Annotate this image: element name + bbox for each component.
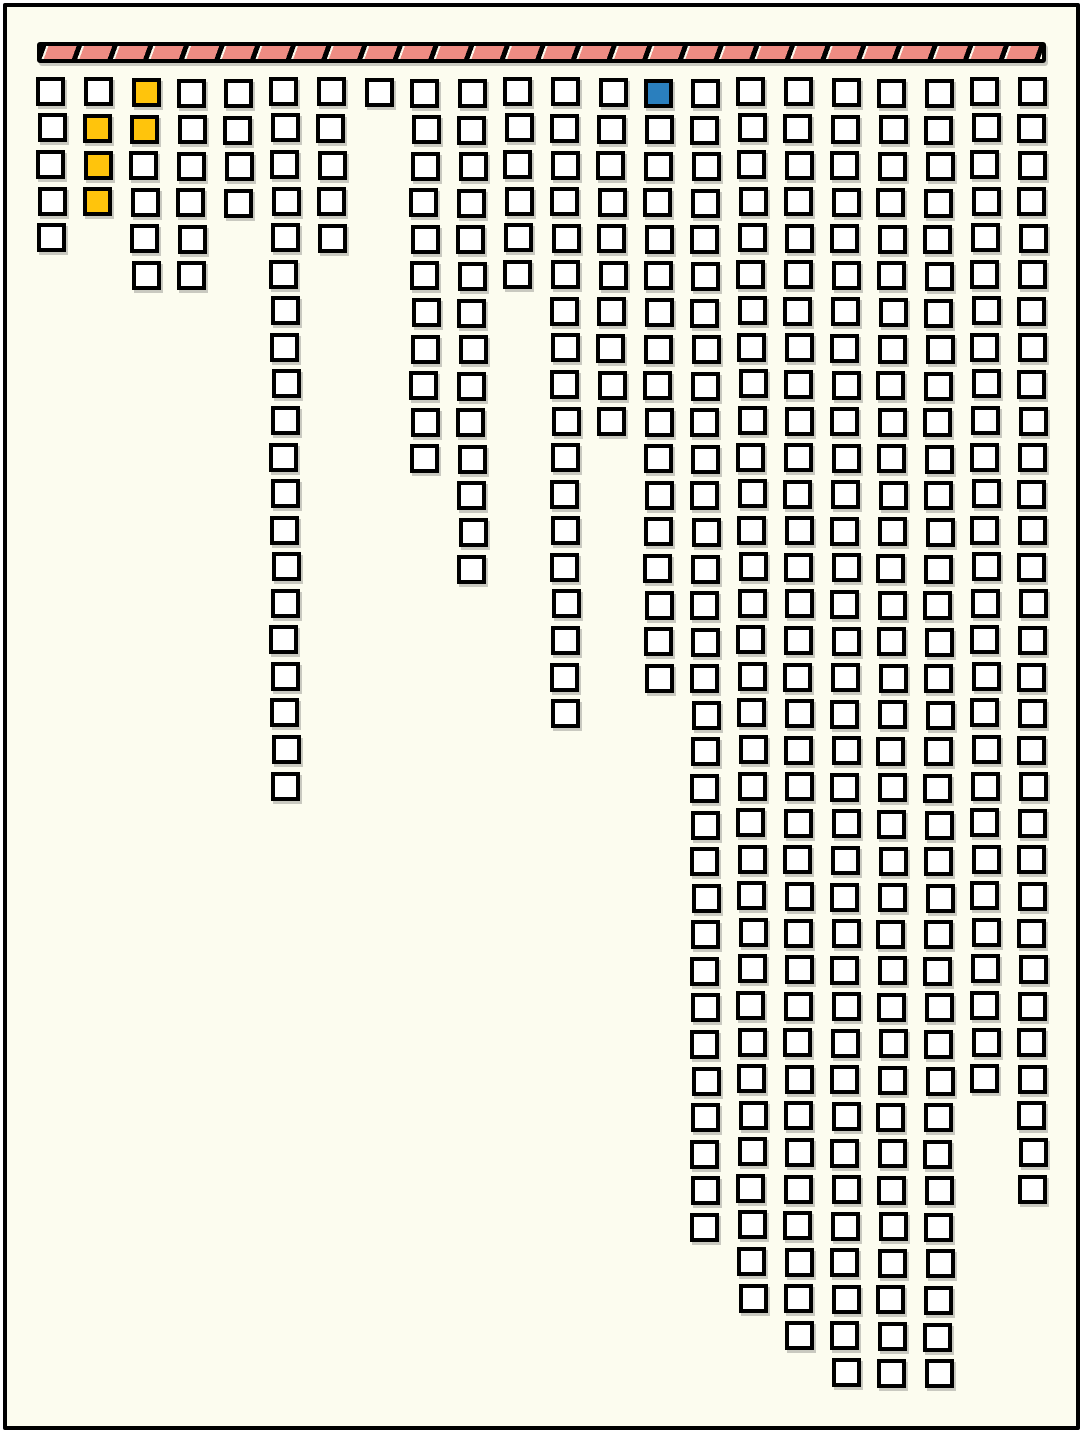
cell-c19-r6 — [877, 261, 906, 290]
cell-c4-r1 — [177, 79, 206, 108]
cell-c19-r22 — [879, 847, 908, 876]
cell-c17-r33 — [785, 1248, 814, 1277]
cell-c18-r13 — [830, 517, 859, 546]
cell-c18-r18 — [830, 700, 859, 729]
cell-c10-r4 — [457, 189, 486, 218]
cell-c12-r3 — [551, 151, 580, 180]
cell-c10-r6 — [458, 262, 487, 291]
cell-c18-r16 — [832, 627, 861, 656]
cell-c21-r11 — [970, 443, 999, 472]
cell-c20-r32 — [924, 1213, 953, 1242]
cell-c22-r14 — [1017, 553, 1046, 582]
cell-c11-r1 — [503, 77, 532, 106]
cell-c20-r34 — [924, 1286, 953, 1315]
cell-c15-r14 — [691, 555, 720, 584]
cell-c19-r4 — [876, 188, 905, 217]
cell-c16-r32 — [738, 1210, 767, 1239]
cell-c10-r13 — [459, 518, 488, 547]
cell-c14-r8 — [644, 335, 673, 364]
cell-c15-r26 — [691, 993, 720, 1022]
cell-c11-r6 — [503, 260, 532, 289]
cell-c11-r3 — [503, 150, 532, 179]
cell-c3-r6 — [132, 261, 161, 290]
cell-c22-r12 — [1017, 480, 1046, 509]
cell-c5-r3 — [225, 152, 254, 181]
cell-c17-r2 — [783, 114, 812, 143]
cell-c10-r12 — [457, 481, 486, 510]
cell-c7-r3 — [318, 151, 347, 180]
cell-c21-r12 — [972, 479, 1001, 508]
cell-c17-r22 — [783, 845, 812, 874]
cell-c10-r11 — [458, 445, 487, 474]
cell-c21-r17 — [972, 662, 1001, 691]
cell-c19-r10 — [878, 408, 907, 437]
cell-c15-r18 — [692, 701, 721, 730]
cell-c19-r7 — [879, 298, 908, 327]
cell-c21-r28 — [970, 1064, 999, 1093]
cell-c14-r6 — [644, 261, 673, 290]
cell-c9-r10 — [411, 408, 440, 437]
cell-c21-r24 — [972, 918, 1001, 947]
cell-c2-r1 — [84, 77, 113, 106]
cell-c4-r5 — [178, 225, 207, 254]
cell-c18-r25 — [830, 956, 859, 985]
cell-c15-r31 — [691, 1176, 720, 1205]
cell-c17-r27 — [783, 1028, 812, 1057]
cell-c17-r8 — [785, 333, 814, 362]
cell-c21-r10 — [971, 406, 1000, 435]
cell-c17-r4 — [784, 187, 813, 216]
cell-c21-r7 — [972, 296, 1001, 325]
cell-c19-r21 — [877, 810, 906, 839]
cell-c20-r15 — [923, 591, 952, 620]
cell-c20-r27 — [924, 1030, 953, 1059]
cell-c16-r19 — [739, 735, 768, 764]
cell-c16-r10 — [738, 406, 767, 435]
cell-c20-r25 — [923, 957, 952, 986]
cell-c18-r31 — [832, 1175, 861, 1204]
cell-c13-r6 — [599, 261, 628, 290]
cell-c15-r3 — [692, 152, 721, 181]
cell-c14-r2 — [645, 115, 674, 144]
cell-c14-r17 — [645, 664, 674, 693]
cell-c22-r8 — [1018, 333, 1047, 362]
cell-c12-r5 — [552, 224, 581, 253]
cell-c18-r32 — [831, 1212, 860, 1241]
cell-c6-r12 — [271, 479, 300, 508]
cell-c19-r27 — [879, 1029, 908, 1058]
cell-c18-r33 — [830, 1248, 859, 1277]
cell-c12-r13 — [551, 516, 580, 545]
cell-c4-r3 — [177, 152, 206, 181]
cell-c17-r16 — [784, 626, 813, 655]
cell-c22-r18 — [1018, 699, 1047, 728]
cell-c20-r26 — [925, 993, 954, 1022]
cell-c16-r18 — [737, 698, 766, 727]
cell-c17-r11 — [784, 443, 813, 472]
cell-c22-r26 — [1018, 992, 1047, 1021]
cell-c20-r6 — [925, 262, 954, 291]
cell-c19-r26 — [877, 993, 906, 1022]
cell-c9-r7 — [412, 298, 441, 327]
cell-c21-r8 — [970, 333, 999, 362]
cell-c22-r5 — [1019, 224, 1048, 253]
cell-c7-r1 — [317, 77, 346, 106]
cell-c15-r19 — [691, 737, 720, 766]
cell-c18-r22 — [831, 846, 860, 875]
cell-c16-r22 — [738, 845, 767, 874]
cell-c22-r2 — [1017, 114, 1046, 143]
cell-c12-r7 — [550, 297, 579, 326]
cell-c1-r5 — [37, 223, 66, 252]
cell-c6-r8 — [270, 333, 299, 362]
cell-c19-r1 — [877, 79, 906, 108]
cell-c13-r10 — [597, 407, 626, 436]
cell-c19-r9 — [876, 371, 905, 400]
highlighted-cell-blue-c14-r1 — [644, 79, 673, 108]
cell-c22-r13 — [1018, 516, 1047, 545]
cell-c20-r9 — [924, 372, 953, 401]
cell-c20-r22 — [924, 847, 953, 876]
cell-c9-r2 — [412, 115, 441, 144]
cell-c12-r15 — [552, 589, 581, 618]
cell-c17-r34 — [784, 1284, 813, 1313]
cell-c22-r10 — [1019, 407, 1048, 436]
cell-c15-r17 — [690, 664, 719, 693]
cell-c18-r26 — [832, 992, 861, 1021]
cell-c10-r3 — [459, 152, 488, 181]
cell-c15-r25 — [690, 957, 719, 986]
cell-c18-r1 — [832, 78, 861, 107]
cell-c17-r13 — [785, 516, 814, 545]
cell-c21-r20 — [971, 772, 1000, 801]
cell-c1-r3 — [36, 150, 65, 179]
cell-c6-r14 — [272, 552, 301, 581]
cell-c15-r13 — [692, 518, 721, 547]
cell-c19-r23 — [878, 883, 907, 912]
cell-c12-r1 — [551, 77, 580, 106]
cell-c14-r5 — [645, 225, 674, 254]
cell-c18-r14 — [832, 553, 861, 582]
cell-c16-r5 — [738, 223, 767, 252]
cell-c6-r4 — [272, 187, 301, 216]
cell-c17-r23 — [785, 882, 814, 911]
cell-c12-r14 — [550, 553, 579, 582]
cell-c17-r19 — [784, 736, 813, 765]
cell-c20-r28 — [926, 1067, 955, 1096]
cell-c22-r24 — [1017, 919, 1046, 948]
cell-c6-r5 — [271, 223, 300, 252]
cell-c19-r16 — [877, 627, 906, 656]
cell-c22-r19 — [1017, 736, 1046, 765]
cell-c18-r11 — [832, 444, 861, 473]
cell-c22-r15 — [1019, 589, 1048, 618]
cell-c9-r8 — [411, 335, 440, 364]
cell-c17-r14 — [784, 553, 813, 582]
cell-c14-r11 — [644, 444, 673, 473]
cell-c16-r8 — [737, 333, 766, 362]
cell-c15-r5 — [690, 225, 719, 254]
cell-c22-r3 — [1018, 151, 1047, 180]
cell-c13-r3 — [596, 151, 625, 180]
cell-c21-r1 — [970, 77, 999, 106]
cell-c17-r12 — [783, 480, 812, 509]
cell-c20-r14 — [924, 555, 953, 584]
cell-c16-r24 — [739, 918, 768, 947]
cell-c17-r5 — [785, 224, 814, 253]
cell-c19-r35 — [878, 1322, 907, 1351]
cell-c16-r11 — [736, 443, 765, 472]
cell-c10-r14 — [457, 555, 486, 584]
cell-c22-r17 — [1017, 663, 1046, 692]
cell-c20-r11 — [925, 445, 954, 474]
cell-c17-r3 — [785, 151, 814, 180]
cell-c21-r15 — [971, 589, 1000, 618]
cell-c17-r6 — [784, 260, 813, 289]
cell-c22-r4 — [1017, 187, 1046, 216]
cell-c6-r15 — [271, 589, 300, 618]
cell-c20-r35 — [923, 1323, 952, 1352]
cell-c20-r21 — [925, 811, 954, 840]
cell-c22-r22 — [1017, 845, 1046, 874]
cell-c6-r17 — [271, 662, 300, 691]
cell-c15-r23 — [692, 884, 721, 913]
cell-c7-r5 — [318, 224, 347, 253]
cell-c18-r30 — [830, 1139, 859, 1168]
cell-c9-r4 — [409, 188, 438, 217]
cell-c18-r8 — [830, 334, 859, 363]
cell-c18-r27 — [831, 1029, 860, 1058]
cell-c20-r24 — [924, 920, 953, 949]
cell-c21-r6 — [970, 260, 999, 289]
cell-c22-r16 — [1018, 626, 1047, 655]
cell-c17-r28 — [785, 1065, 814, 1094]
cell-c21-r22 — [972, 845, 1001, 874]
cell-c19-r19 — [876, 737, 905, 766]
cell-c6-r6 — [269, 260, 298, 289]
cell-c13-r5 — [597, 224, 626, 253]
cell-c6-r11 — [269, 443, 298, 472]
cell-c15-r16 — [691, 628, 720, 657]
cell-c13-r8 — [596, 334, 625, 363]
cell-c19-r12 — [879, 481, 908, 510]
cell-c18-r35 — [830, 1321, 859, 1350]
cell-c22-r29 — [1017, 1101, 1046, 1130]
cell-c12-r12 — [550, 480, 579, 509]
cell-c4-r6 — [177, 261, 206, 290]
cell-c6-r18 — [270, 698, 299, 727]
cell-c16-r26 — [736, 991, 765, 1020]
cell-c18-r17 — [831, 663, 860, 692]
cell-c17-r7 — [783, 297, 812, 326]
cell-c15-r15 — [690, 591, 719, 620]
cell-c17-r24 — [784, 919, 813, 948]
cell-c17-r18 — [785, 699, 814, 728]
cell-c15-r32 — [690, 1213, 719, 1242]
cell-c16-r31 — [736, 1174, 765, 1203]
cell-c22-r27 — [1017, 1028, 1046, 1057]
cell-c17-r25 — [785, 955, 814, 984]
cell-c18-r36 — [832, 1358, 861, 1387]
cell-c19-r29 — [876, 1103, 905, 1132]
cell-c22-r6 — [1018, 260, 1047, 289]
cell-c3-r5 — [130, 224, 159, 253]
cell-c18-r20 — [830, 773, 859, 802]
cell-c6-r1 — [269, 77, 298, 106]
cell-c18-r2 — [831, 115, 860, 144]
cell-c9-r11 — [410, 444, 439, 473]
cell-c19-r13 — [878, 517, 907, 546]
cell-c5-r4 — [224, 189, 253, 218]
cell-c13-r1 — [599, 78, 628, 107]
cell-c12-r9 — [550, 370, 579, 399]
cell-c17-r15 — [785, 589, 814, 618]
cell-c16-r16 — [736, 625, 765, 654]
cell-c19-r3 — [878, 152, 907, 181]
cell-c7-r4 — [317, 187, 346, 216]
cell-c6-r13 — [270, 516, 299, 545]
cell-c10-r7 — [457, 299, 486, 328]
cell-c14-r7 — [645, 298, 674, 327]
cell-c15-r21 — [691, 811, 720, 840]
cell-c17-r35 — [785, 1321, 814, 1350]
cell-c21-r14 — [972, 552, 1001, 581]
cell-c16-r33 — [737, 1247, 766, 1276]
cell-c16-r2 — [738, 113, 767, 142]
cell-c11-r4 — [505, 187, 534, 216]
cell-c21-r21 — [970, 808, 999, 837]
cell-c21-r23 — [970, 881, 999, 910]
cell-c12-r16 — [551, 626, 580, 655]
cell-c22-r20 — [1019, 772, 1048, 801]
cell-c16-r29 — [739, 1101, 768, 1130]
cell-c20-r8 — [926, 335, 955, 364]
cell-c21-r13 — [970, 516, 999, 545]
cell-c15-r2 — [690, 116, 719, 145]
cell-c17-r1 — [784, 77, 813, 106]
cell-c18-r3 — [830, 151, 859, 180]
cell-c13-r7 — [597, 297, 626, 326]
cell-c16-r4 — [739, 187, 768, 216]
cell-c18-r4 — [832, 188, 861, 217]
cell-c16-r12 — [738, 479, 767, 508]
cell-c1-r4 — [38, 187, 67, 216]
cell-c21-r18 — [970, 698, 999, 727]
cell-c9-r5 — [411, 225, 440, 254]
cell-c20-r30 — [923, 1140, 952, 1169]
cell-c6-r7 — [271, 296, 300, 325]
cell-c3-r3 — [129, 151, 158, 180]
highlighted-cell-yellow-c3-r1 — [132, 78, 161, 107]
cell-c10-r8 — [459, 335, 488, 364]
cell-c20-r2 — [924, 116, 953, 145]
cell-c20-r31 — [925, 1176, 954, 1205]
cell-c20-r1 — [925, 79, 954, 108]
cell-c18-r28 — [830, 1065, 859, 1094]
cell-c19-r11 — [877, 444, 906, 473]
cell-c19-r30 — [878, 1139, 907, 1168]
cell-c21-r4 — [972, 187, 1001, 216]
cell-c14-r15 — [645, 591, 674, 620]
cell-c6-r3 — [270, 150, 299, 179]
hanging-squares-board — [0, 0, 1083, 1433]
cell-c13-r9 — [598, 371, 627, 400]
cell-c14-r3 — [644, 152, 673, 181]
cell-c14-r9 — [643, 371, 672, 400]
highlighted-cell-yellow-c2-r4 — [83, 187, 112, 216]
cell-c15-r20 — [690, 774, 719, 803]
cell-c15-r30 — [690, 1140, 719, 1169]
cell-c21-r26 — [970, 991, 999, 1020]
cell-c20-r29 — [924, 1103, 953, 1132]
cell-c6-r9 — [272, 369, 301, 398]
cell-c20-r3 — [926, 152, 955, 181]
cell-c16-r9 — [739, 369, 768, 398]
cell-c12-r4 — [550, 187, 579, 216]
cell-c21-r2 — [972, 113, 1001, 142]
cell-c8-r1 — [365, 78, 394, 107]
cell-c12-r8 — [551, 333, 580, 362]
cell-c19-r17 — [879, 664, 908, 693]
cell-c20-r16 — [925, 628, 954, 657]
cell-c22-r7 — [1017, 297, 1046, 326]
cell-c6-r20 — [271, 772, 300, 801]
cell-c9-r3 — [411, 152, 440, 181]
cell-c4-r2 — [178, 115, 207, 144]
cell-c18-r10 — [830, 407, 859, 436]
cell-c20-r7 — [924, 299, 953, 328]
cell-c20-r4 — [924, 189, 953, 218]
cell-c22-r25 — [1019, 955, 1048, 984]
cell-c4-r4 — [176, 188, 205, 217]
cell-c21-r9 — [972, 369, 1001, 398]
cell-c6-r16 — [269, 625, 298, 654]
cell-c6-r10 — [271, 406, 300, 435]
cell-c9-r6 — [410, 261, 439, 290]
cell-c20-r20 — [923, 774, 952, 803]
cell-c1-r1 — [36, 77, 65, 106]
cell-c20-r33 — [926, 1249, 955, 1278]
cell-c21-r19 — [972, 735, 1001, 764]
cell-c22-r21 — [1018, 809, 1047, 838]
cell-c18-r6 — [832, 261, 861, 290]
cell-c15-r1 — [691, 79, 720, 108]
cell-c11-r2 — [505, 113, 534, 142]
cell-c14-r10 — [645, 408, 674, 437]
cell-c22-r31 — [1018, 1175, 1047, 1204]
cell-c15-r10 — [690, 408, 719, 437]
cell-c22-r23 — [1018, 882, 1047, 911]
cell-c17-r30 — [785, 1138, 814, 1167]
cell-c12-r2 — [550, 114, 579, 143]
cell-c19-r8 — [878, 335, 907, 364]
cell-c15-r22 — [690, 847, 719, 876]
cell-c15-r11 — [691, 445, 720, 474]
cell-c16-r1 — [736, 77, 765, 106]
cell-c15-r6 — [691, 262, 720, 291]
cell-c19-r2 — [879, 115, 908, 144]
cell-c20-r17 — [924, 664, 953, 693]
cell-c16-r25 — [738, 954, 767, 983]
cell-c6-r19 — [272, 735, 301, 764]
cell-c19-r25 — [878, 956, 907, 985]
cell-c20-r19 — [924, 737, 953, 766]
cell-c1-r2 — [38, 113, 67, 142]
board-frame — [3, 3, 1080, 1430]
cell-c10-r9 — [457, 372, 486, 401]
cell-c16-r17 — [738, 662, 767, 691]
cell-c10-r1 — [458, 79, 487, 108]
